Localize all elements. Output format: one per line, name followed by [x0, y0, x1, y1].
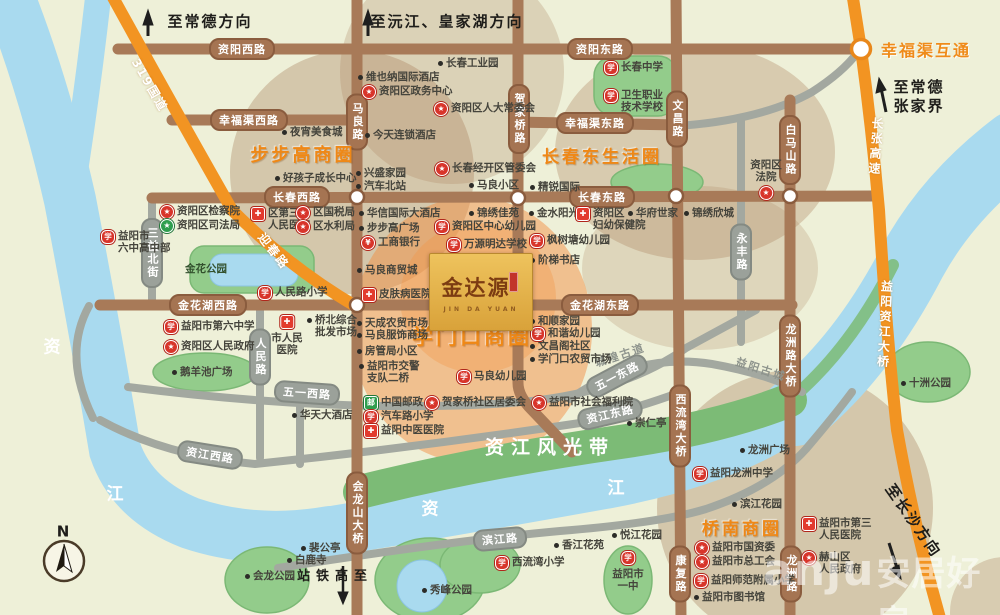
poi-icon: 学 — [694, 574, 708, 588]
poi-icon: ★ — [532, 396, 546, 410]
poi-icon — [530, 357, 535, 362]
poi-icon: ★ — [160, 205, 174, 219]
poi-label: 汽车路小学 — [381, 410, 434, 422]
poi-icon: 学 — [530, 234, 544, 248]
poi-label: 益阳市图书馆 — [702, 591, 765, 603]
poi-label: 益阳市第六中学 — [181, 320, 255, 332]
road-label: 人民路 — [249, 329, 271, 386]
poi-icon: ★ — [296, 206, 310, 220]
poi-icon — [245, 574, 250, 579]
poi-label: 贺家桥社区居委会 — [442, 396, 526, 408]
poi-icon — [359, 211, 364, 216]
map-poi: 华府世家 — [628, 207, 678, 219]
map-poi: 学 益阳市 一中 — [612, 551, 644, 592]
poi-label: 西流湾小学 — [512, 556, 565, 568]
poi-label: 长春经开区管委会 — [452, 162, 536, 174]
poi-label: 益阳市社会福利院 — [549, 396, 633, 408]
poi-label: 兴盛家园 — [364, 167, 406, 179]
poi-icon — [694, 595, 699, 600]
map-poi: 秀峰公园 — [422, 584, 472, 596]
map-poi: ★ 资阳区人民政府 — [164, 340, 255, 354]
poi-icon: ✚ — [364, 424, 378, 438]
poi-label: 马良幼儿园 — [474, 370, 527, 382]
poi-label: 工商银行 — [378, 236, 420, 248]
poi-icon — [530, 344, 535, 349]
map-poi: 滨江花园 — [732, 498, 782, 510]
poi-label: 马良小区 — [477, 179, 519, 191]
poi-label: 万源明达学校 — [464, 238, 527, 250]
map-poi: ★ 长春经开区管委会 — [435, 162, 536, 176]
map-poi: 学 人民路小学 — [258, 286, 328, 300]
poi-icon — [356, 171, 361, 176]
poi-label: 中国邮政 — [381, 396, 423, 408]
road-label: 龙洲路大桥 — [779, 315, 801, 398]
poi-label: 步步高广场 — [367, 222, 420, 234]
poi-label: 和谐幼儿园 — [548, 327, 601, 339]
poi-icon: 学 — [621, 551, 635, 565]
poi-label: 益阳市第三 人民医院 — [819, 517, 872, 541]
poi-label: 汽车北站 — [364, 180, 406, 192]
poi-label: 皮肤病医院 — [379, 288, 432, 300]
poi-label: 房管局小区 — [365, 345, 418, 357]
poi-icon: ✚ — [280, 315, 294, 329]
map-poi: 学 万源明达学校 — [447, 238, 527, 252]
poi-label: 十洲公园 — [909, 377, 951, 389]
direction-label: 至常德 张家界 — [893, 78, 944, 116]
poi-icon — [732, 502, 737, 507]
poi-label: 资阳区中心幼儿园 — [452, 220, 536, 232]
poi-label: 白鹿寺 — [295, 554, 327, 566]
poi-label: 滨江花园 — [740, 498, 782, 510]
poi-icon: 学 — [693, 467, 707, 481]
poi-icon: ★ — [759, 186, 773, 200]
map-poi: 阶梯书店 — [530, 254, 580, 266]
poi-icon — [684, 211, 689, 216]
map-poi: 今天连锁酒店 — [365, 129, 436, 141]
poi-label: 文昌阁社区 — [538, 340, 591, 352]
poi-icon — [529, 211, 534, 216]
poi-icon — [469, 211, 474, 216]
road-label: 幸福渠互通 — [881, 37, 971, 61]
map-poi: 学 长春中学 — [604, 61, 663, 75]
poi-label: 区国税局 — [313, 206, 355, 218]
water-label: 资 — [44, 333, 61, 358]
road-label: 幸福渠西路 — [210, 109, 288, 131]
map-poi: 邮 中国邮政 — [364, 396, 423, 410]
road-label: 会龙山大桥 — [346, 472, 368, 555]
business-circle-label: 长春东生活圈 — [542, 143, 662, 168]
map-poi: 马良商贸城 — [357, 264, 418, 276]
poi-icon: 学 — [604, 61, 618, 75]
map-poi: 锦绣佳苑 — [469, 207, 519, 219]
poi-icon — [282, 130, 287, 135]
poi-icon — [357, 321, 362, 326]
poi-icon: ✚ — [802, 517, 816, 531]
map-poi: 学 益阳龙洲中学 — [693, 467, 773, 481]
poi-icon — [356, 184, 361, 189]
project-latin-name: JIN DA YUAN — [444, 306, 519, 313]
map-poi: 兴盛家园 — [356, 167, 406, 179]
map-poi: ★ 资阳区司法局 — [160, 219, 240, 233]
water-label: 资 — [422, 495, 439, 520]
direction-label: 至沅江、皇家湖方向 — [370, 13, 523, 32]
map-poi: 学 益阳市 六中高中部 — [101, 230, 171, 254]
map-poi: ★ 资阳区检察院 — [160, 205, 240, 219]
map-poi: ✚ 益阳市第三 人民医院 — [802, 517, 872, 541]
map-canvas: 资阳西路资阳东路幸福渠西路幸福渠东路长春西路长春东路金花湖西路金花湖东路马良路贺… — [0, 0, 1000, 615]
business-circle-label: 桥南商圈 — [702, 515, 782, 540]
poi-label: 好孩子成长中心 — [283, 172, 357, 184]
map-poi: 维也纳国际酒店 — [358, 71, 440, 83]
watermark: anju 安居好房 — [763, 545, 1000, 615]
poi-label: 崇仁亭 — [635, 417, 667, 429]
poi-label: 区水利局 — [313, 220, 355, 232]
road-label: 康复路 — [669, 546, 691, 603]
poi-icon: ✚ — [362, 288, 376, 302]
poi-label: 金花公园 — [185, 263, 227, 275]
map-poi: 学 卫生职业 技术学校 — [604, 89, 663, 113]
watermark-latin: anju — [763, 545, 874, 596]
poi-icon — [357, 349, 362, 354]
poi-label: 阶梯书店 — [538, 254, 580, 266]
map-poi: ★ 资阳区人大常委会 — [434, 102, 535, 116]
map-poi: 裴公亭 — [301, 542, 341, 554]
poi-icon: 学 — [258, 286, 272, 300]
road-label: 幸福渠东路 — [556, 112, 634, 134]
poi-icon: ★ — [434, 102, 448, 116]
poi-label: 精锐国际 — [538, 181, 580, 193]
poi-label: 华天大酒店 — [300, 409, 353, 421]
map-poi: ★ 资阳区政务中心 — [362, 85, 453, 99]
poi-icon: ¥ — [361, 236, 375, 250]
map-poi: 马良服饰商场 — [357, 329, 428, 341]
map-poi: 学 枫树塘幼儿园 — [530, 234, 610, 248]
poi-label: 长春中学 — [621, 61, 663, 73]
poi-icon — [530, 185, 535, 190]
map-poi: ★ 资阳区 法院 — [750, 159, 782, 200]
map-poi: 精锐国际 — [530, 181, 580, 193]
map-poi: 桥北综合 批发市场 — [307, 314, 357, 338]
poi-icon — [422, 588, 427, 593]
map-poi: 益阳市图书馆 — [694, 591, 765, 603]
poi-icon: ★ — [362, 85, 376, 99]
poi-icon: 学 — [164, 320, 178, 334]
road-label: 金花湖东路 — [561, 294, 639, 316]
poi-icon — [469, 183, 474, 188]
poi-label: 资阳区人大常委会 — [451, 102, 535, 114]
poi-icon: 学 — [447, 238, 461, 252]
map-poi: 龙洲广场 — [740, 444, 790, 456]
map-poi: 文昌阁社区 — [530, 340, 591, 352]
poi-label: 资阳区 法院 — [750, 159, 782, 183]
road-label: 金花湖西路 — [169, 294, 247, 316]
poi-icon: ★ — [425, 396, 439, 410]
poi-icon: 学 — [435, 220, 449, 234]
map-poi: 学 和谐幼儿园 — [531, 327, 601, 341]
poi-label: 和顺家园 — [538, 315, 580, 327]
map-poi: 金水阳光 — [529, 207, 579, 219]
road-label: 长春西路 — [264, 186, 330, 208]
poi-label: 今天连锁酒店 — [373, 129, 436, 141]
poi-icon: 学 — [495, 556, 509, 570]
poi-icon — [357, 268, 362, 273]
map-poi: ¥ 工商银行 — [361, 236, 420, 250]
water-label: 江 — [608, 474, 625, 499]
poi-label: 学门口农贸市场 — [538, 353, 612, 365]
water-label: 资江风光带 — [485, 433, 615, 460]
poi-label: 桥北综合 批发市场 — [315, 314, 357, 338]
poi-label: 锦绣欣城 — [692, 207, 734, 219]
map-poi: 华信国际大酒店 — [359, 207, 441, 219]
poi-label: 鹅羊池广场 — [180, 366, 233, 378]
map-poi: 鹅羊池广场 — [172, 366, 233, 378]
map-poi: 夜宵美食城 — [282, 126, 343, 138]
map-poi: 学 益阳市第六中学 — [164, 320, 255, 334]
poi-label: 夜宵美食城 — [290, 126, 343, 138]
poi-label: 裴公亭 — [309, 542, 341, 554]
project-logo: 金达源 JIN DA YUAN — [429, 253, 533, 331]
map-poi: 白鹿寺 — [287, 554, 327, 566]
watermark-cjk: 安居好房 — [876, 546, 1000, 615]
map-poi: ★ 区国税局 — [296, 206, 355, 220]
poi-label: 华信国际大酒店 — [367, 207, 441, 219]
map-poi: 步步高广场 — [359, 222, 420, 234]
poi-label: 益阳市 一中 — [612, 568, 644, 592]
road-label: 永丰路 — [730, 224, 752, 281]
poi-label: 市人民 医院 — [271, 332, 303, 356]
poi-icon — [357, 333, 362, 338]
poi-icon: 学 — [531, 327, 545, 341]
map-poi: 汽车北站 — [356, 180, 406, 192]
poi-label: 马良服饰商场 — [365, 329, 428, 341]
poi-icon — [628, 211, 633, 216]
map-poi: 悦江花园 — [612, 529, 662, 541]
poi-icon — [359, 364, 364, 369]
poi-label: 天成农贸市场 — [365, 317, 428, 329]
map-poi: ★ 区水利局 — [296, 220, 355, 234]
poi-label: 益阳中医医院 — [381, 424, 444, 436]
poi-label: 枫树塘幼儿园 — [547, 234, 610, 246]
poi-icon — [740, 448, 745, 453]
road-label: 文昌路 — [666, 91, 688, 148]
poi-icon — [365, 133, 370, 138]
direction-label: 至常德方向 — [167, 13, 252, 32]
map-poi: 马良小区 — [469, 179, 519, 191]
poi-icon: 学 — [101, 230, 115, 244]
map-poi: ★ 贺家桥社区居委会 — [425, 396, 526, 410]
poi-label: 资阳区检察院 — [177, 205, 240, 217]
poi-icon: 学 — [604, 89, 618, 103]
business-circle-label: 步步高商圈 — [251, 141, 356, 167]
poi-icon: ✚ — [251, 207, 265, 221]
map-poi: 天成农贸市场 — [357, 317, 428, 329]
map-poi: 学 汽车路小学 — [364, 410, 434, 424]
map-poi: ✚ 市人民 医院 — [271, 315, 303, 356]
map-poi: 益阳市交警 支队二桥 — [359, 360, 420, 384]
poi-label: 益阳市 六中高中部 — [118, 230, 171, 254]
map-poi: 香江花苑 — [554, 539, 604, 551]
map-poi: 好孩子成长中心 — [275, 172, 357, 184]
map-poi: 锦绣欣城 — [684, 207, 734, 219]
road-label: 资阳西路 — [209, 38, 275, 60]
water-label: 江 — [107, 480, 124, 505]
poi-label: 香江花苑 — [562, 539, 604, 551]
poi-icon: ★ — [296, 220, 310, 234]
poi-label: 马良商贸城 — [365, 264, 418, 276]
map-poi: 十洲公园 — [901, 377, 951, 389]
poi-icon — [292, 413, 297, 418]
poi-label: 卫生职业 技术学校 — [621, 89, 663, 113]
road-label: 五一西路 — [273, 380, 340, 407]
road-label: 白马山路 — [779, 115, 801, 185]
poi-label: 资阳区司法局 — [177, 219, 240, 231]
map-poi: ✚ 益阳中医医院 — [364, 424, 444, 438]
poi-icon: ★ — [435, 162, 449, 176]
road-label: 资阳东路 — [567, 38, 633, 60]
map-poi: 房管局小区 — [357, 345, 418, 357]
map-poi: 华天大酒店 — [292, 409, 353, 421]
poi-icon — [359, 226, 364, 231]
poi-label: 龙洲广场 — [748, 444, 790, 456]
road-label: 西流湾大桥 — [669, 385, 691, 468]
map-poi: ✚ 皮肤病医院 — [362, 288, 432, 302]
poi-label: 锦绣佳苑 — [477, 207, 519, 219]
poi-icon — [358, 75, 363, 80]
poi-label: 华府世家 — [636, 207, 678, 219]
poi-label: 资阳区人民政府 — [181, 340, 255, 352]
poi-icon — [554, 543, 559, 548]
map-poi: 学 资阳区中心幼儿园 — [435, 220, 536, 234]
poi-label: 会龙公园 — [253, 570, 295, 582]
poi-icon — [307, 318, 312, 323]
map-poi: 学 马良幼儿园 — [457, 370, 527, 384]
poi-icon: ★ — [695, 555, 709, 569]
poi-icon: ★ — [695, 541, 709, 555]
poi-icon — [612, 533, 617, 538]
map-poi: ★ 益阳市社会福利院 — [532, 396, 633, 410]
map-poi: 会龙公园 — [245, 570, 295, 582]
project-seal-icon — [509, 272, 518, 292]
poi-label: 悦江花园 — [620, 529, 662, 541]
poi-label: 金水阳光 — [537, 207, 579, 219]
poi-label: 益阳龙洲中学 — [710, 467, 773, 479]
poi-label: 益阳市交警 支队二桥 — [367, 360, 420, 384]
poi-label: 维也纳国际酒店 — [366, 71, 440, 83]
poi-icon — [627, 421, 632, 426]
poi-label: 秀峰公园 — [430, 584, 472, 596]
map-poi: 崇仁亭 — [627, 417, 667, 429]
map-poi: 金花公园 — [185, 263, 227, 275]
poi-icon: 学 — [364, 410, 378, 424]
road-label: 贺家桥路 — [508, 84, 530, 154]
map-poi: 和顺家园 — [530, 315, 580, 327]
poi-label: 资阳区政务中心 — [379, 85, 453, 97]
poi-icon — [275, 176, 280, 181]
map-poi: 学 西流湾小学 — [495, 556, 565, 570]
poi-icon — [287, 558, 292, 563]
map-poi: 学门口农贸市场 — [530, 353, 612, 365]
poi-icon: ★ — [164, 340, 178, 354]
poi-icon — [301, 546, 306, 551]
poi-icon — [172, 370, 177, 375]
poi-icon — [438, 61, 443, 66]
poi-icon — [901, 381, 906, 386]
poi-icon: 邮 — [364, 396, 378, 410]
poi-icon: 学 — [457, 370, 471, 384]
project-name: 金达源 — [442, 272, 511, 302]
poi-icon: ✚ — [576, 207, 590, 221]
poi-label: 长春工业园 — [446, 57, 499, 69]
direction-label: 至高铁站 — [292, 569, 368, 600]
compass-icon — [44, 541, 84, 581]
poi-label: 人民路小学 — [275, 286, 328, 298]
map-poi: 长春工业园 — [438, 57, 499, 69]
direction-label: N — [57, 523, 70, 542]
